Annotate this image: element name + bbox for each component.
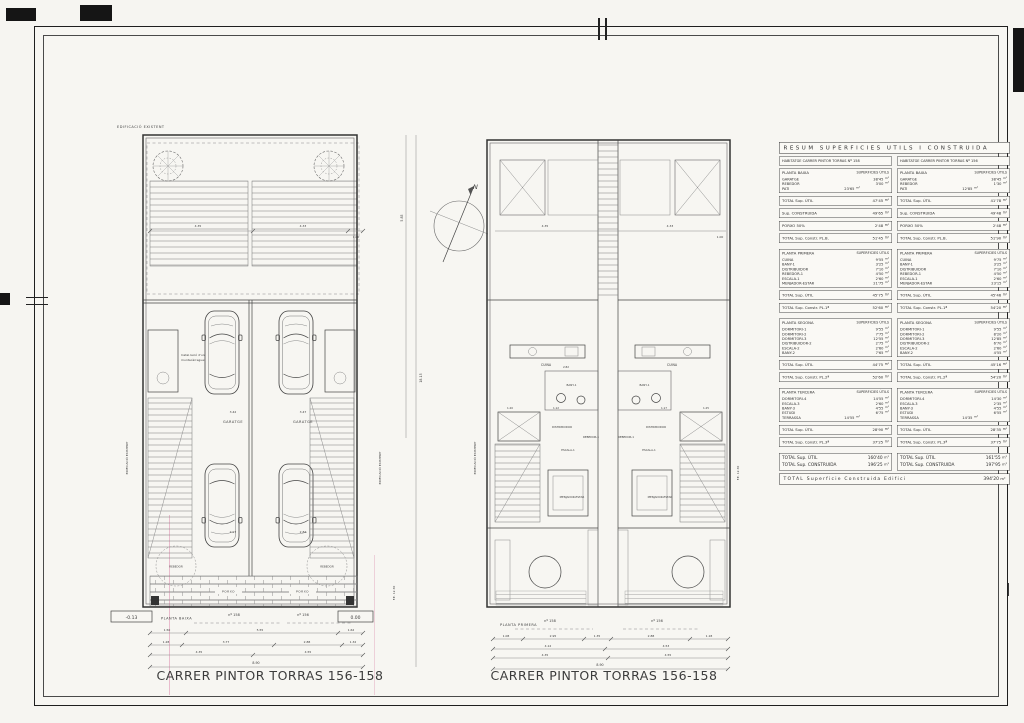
svg-text:8.90: 8.90 xyxy=(596,663,603,667)
table-section: PLANTA BAIXASUPERFICIES ÚTILSGARATGE38'4… xyxy=(779,169,892,194)
svg-text:1.32: 1.32 xyxy=(350,640,357,644)
total-label: TOTAL Sup. Constr. PL.1ª xyxy=(900,306,947,311)
table-row: BANY-27'65m² xyxy=(782,351,889,356)
section-title: PLANTA PRIMERA xyxy=(900,251,932,256)
section-head: PLANTA TERCERASUPERFICIES ÚTILS xyxy=(900,390,1007,395)
edificacio-existent-label: EDIFICACIÓ EXISTENT xyxy=(117,124,165,129)
cell-value: 28'35m² xyxy=(991,428,1007,433)
value-unit: m² xyxy=(1003,411,1007,416)
value-number: 54'20 xyxy=(991,306,1002,311)
value-number: 6'75 xyxy=(876,411,884,416)
dim-label: 1.00 xyxy=(717,235,724,239)
table-total-row: PORXO 50%2'48m² xyxy=(779,221,892,231)
value-number: 37'25 xyxy=(873,440,884,445)
section-title: PLANTA BAIXA xyxy=(782,171,809,176)
room-label-bany: BANY-1 xyxy=(567,383,577,387)
cell-value: 45'16m² xyxy=(991,363,1007,368)
value-number: 47'45 xyxy=(873,199,884,204)
value-number: 196'25 xyxy=(868,462,883,469)
value-unit: m² xyxy=(884,462,889,469)
total-label: PORXO 50% xyxy=(900,224,923,229)
value-number: 28'35 xyxy=(991,428,1002,433)
cell-value: 196'25m² xyxy=(868,462,889,469)
plan-title: PLANTA PRIMERA xyxy=(500,623,537,627)
section-subtitle: SUPERFICIES ÚTILS xyxy=(856,321,889,326)
cell-value: 23'15m² xyxy=(991,281,1007,286)
table-section: PLANTA PRIMERASUPERFICIES ÚTILSCUINA9'55… xyxy=(779,249,892,288)
registration-tick xyxy=(598,18,600,40)
total-label: TOTAL Sup. ÚTIL xyxy=(900,363,931,368)
total-label: TOTAL Sup. ÚTIL xyxy=(782,363,813,368)
row-name: MENJADOR-ESTAR xyxy=(900,281,932,286)
total-label: TOTAL Sup. Constr. PL.B. xyxy=(782,236,829,241)
value-number: 45'16 xyxy=(991,363,1002,368)
value-unit: m² xyxy=(1003,211,1007,216)
grand-label: TOTAL Sup. CONSTRUIDA xyxy=(782,462,836,469)
value-unit: m² xyxy=(885,211,889,216)
value-unit: m² xyxy=(1003,293,1007,298)
value-unit: m² xyxy=(885,411,889,416)
summary-table-columns: HABITATGE CARRER PINTOR TORRAS Nº 158PLA… xyxy=(779,157,1010,474)
row-name: TERRASSA xyxy=(900,415,919,420)
cell-value: 47'45m² xyxy=(873,199,889,204)
grand-row: TOTAL Sup. ÚTIL161'55m² xyxy=(900,455,1007,462)
cell-value: 7'65m² xyxy=(876,351,889,356)
value-number: 49'48 xyxy=(991,211,1002,216)
value-unit: m² xyxy=(1003,224,1007,229)
cell-value: 161'55m² xyxy=(986,455,1007,462)
slab-line xyxy=(143,300,357,303)
svg-text:3.77: 3.77 xyxy=(223,640,230,644)
value-unit: m² xyxy=(1003,363,1007,368)
lift-note: Instal·lació d'un xyxy=(181,353,205,357)
room-label-rebedor: REBEDOR xyxy=(169,565,183,569)
value-number: 3'00 xyxy=(876,182,884,187)
tree-icon xyxy=(314,151,344,181)
existing-stair-hatch xyxy=(150,181,248,266)
total-label: TOTAL Sup. Constr. PL.3ª xyxy=(782,440,829,445)
summary-column: HABITATGE CARRER PINTOR TORRAS Nº 156PLA… xyxy=(897,157,1010,474)
section-head: PLANTA PRIMERASUPERFICIES ÚTILS xyxy=(900,251,1007,256)
value-unit: m² xyxy=(856,186,860,191)
edificacio-existent-label: EDIFICACIÓ EXISTENT xyxy=(472,442,477,475)
elevation-value: 0.00 xyxy=(350,615,360,621)
table-header: HABITATGE CARRER PINTOR TORRAS Nº 156 xyxy=(897,157,1010,166)
plan-title: PLANTA BAIXA xyxy=(161,617,192,621)
svg-text:1.62: 1.62 xyxy=(348,628,355,632)
cell-value: 45'46m² xyxy=(991,293,1007,298)
table-total-row: TOTAL Sup. Constr. PL.1ª54'20m² xyxy=(897,303,1010,313)
cell-value: 14'35m² xyxy=(962,415,978,420)
stair-hatch xyxy=(495,444,725,522)
kitchen-counter xyxy=(510,345,710,358)
total-label: TOTAL Sup. ÚTIL xyxy=(782,428,813,433)
svg-text:8.90: 8.90 xyxy=(252,661,259,665)
value-number: 54'20 xyxy=(991,375,1002,380)
table-total-row: TOTAL Sup. ÚTIL28'90m² xyxy=(779,425,892,435)
row-name: MENJADOR-ESTAR xyxy=(782,281,814,286)
value-unit: m² xyxy=(1003,281,1007,286)
svg-text:4.35: 4.35 xyxy=(196,650,203,654)
dim-label: 1.00 xyxy=(353,235,360,239)
value-number: 4'55 xyxy=(994,351,1002,356)
table-total-row: Sup. CONSTRUIDA49'65m² xyxy=(779,209,892,219)
value-number: 52'60 xyxy=(873,375,884,380)
svg-text:1.28: 1.28 xyxy=(163,640,170,644)
table-total-row: TOTAL Sup. Constr. PL.B.51'90m² xyxy=(897,234,1010,244)
value-unit: m² xyxy=(885,306,889,311)
scan-mark xyxy=(6,8,36,21)
dim-line xyxy=(406,135,416,667)
room-label-rebedor: REBEDOR-1 xyxy=(618,435,634,439)
room-label-distribuidor: DISTRIBUIDOR xyxy=(646,425,666,429)
dim-label: 3.47 xyxy=(300,410,307,414)
dim-label: 1.25 xyxy=(703,406,709,410)
edificacio-existent-label: EDIFICACIÓ EXISTENT xyxy=(124,442,129,475)
value-number: 2'48 xyxy=(993,224,1001,229)
dim-label: 2.84 xyxy=(300,530,307,534)
table-total-row: TOTAL Sup. Constr. PL.2ª54'20m² xyxy=(897,373,1010,383)
central-stair-core xyxy=(598,140,618,607)
scan-mark xyxy=(1013,28,1024,92)
section-subtitle: SUPERFICIES ÚTILS xyxy=(974,171,1007,176)
value-number: 49'65 xyxy=(873,211,884,216)
bathroom xyxy=(545,371,671,410)
table-section: PLANTA PRIMERASUPERFICIES ÚTILSCUINA9'75… xyxy=(897,249,1010,288)
value-unit: m² xyxy=(1003,351,1007,356)
section-title: PLANTA TERCERA xyxy=(900,390,933,395)
summary-column: HABITATGE CARRER PINTOR TORRAS Nº 158PLA… xyxy=(779,157,892,474)
cell-value: 6'75m² xyxy=(876,411,889,416)
car-icon xyxy=(202,311,242,394)
room-label-cuina: CUINA xyxy=(667,363,678,367)
value-unit: m² xyxy=(1002,462,1007,469)
edificacio-existent-label: EDIFICACIÓ EXISTENT xyxy=(377,452,382,485)
svg-text:4.55: 4.55 xyxy=(305,650,312,654)
room-label-porxo: PORXO xyxy=(222,590,235,594)
row-name: BANY-2 xyxy=(782,351,795,356)
svg-text:1.08: 1.08 xyxy=(503,634,510,638)
value-unit: m² xyxy=(885,351,889,356)
section-head: PLANTA TERCERASUPERFICIES ÚTILS xyxy=(782,390,889,395)
value-unit: m² xyxy=(885,375,889,380)
value-unit: m² xyxy=(974,415,978,420)
room-label-menjador: MENJADOR-ESTAR xyxy=(648,495,673,499)
svg-text:4.12: 4.12 xyxy=(545,644,552,648)
table-row: PATI23'65m² xyxy=(782,186,889,191)
value-unit: m² xyxy=(1003,306,1007,311)
table-total-row: TOTAL Sup. ÚTIL45'16m² xyxy=(897,360,1010,370)
room-label-escala: ESCALA-1 xyxy=(561,448,575,452)
lift-note: muntacàrregues xyxy=(181,358,206,362)
value-number: 160'40 xyxy=(868,455,883,462)
value-number: 12'85 xyxy=(962,186,972,191)
table-row: TERRASSA14'35m² xyxy=(900,415,1007,420)
value-number: 45'46 xyxy=(991,293,1002,298)
value-unit: m² xyxy=(856,415,860,420)
room-label-menjador: MENJADOR-ESTAR xyxy=(560,495,585,499)
cell-value: 12'85m² xyxy=(962,186,978,191)
car-icon xyxy=(276,311,316,394)
table-section: PLANTA BAIXASUPERFICIES ÚTILSGARATGE38'4… xyxy=(897,169,1010,194)
value-number: 2'48 xyxy=(875,224,883,229)
cell-value: 44'75m² xyxy=(873,363,889,368)
table-total-row: TOTAL Sup. Constr. PL.3ª37'25m² xyxy=(779,438,892,448)
value-number: 23'15 xyxy=(991,281,1001,286)
value-number: 1'30 xyxy=(994,182,1002,187)
dim-label: 1.20 xyxy=(507,406,513,410)
section-subtitle: SUPERFICIES ÚTILS xyxy=(974,251,1007,256)
room-label-cuina: CUINA xyxy=(541,363,552,367)
section-subtitle: SUPERFICIES ÚTILS xyxy=(974,390,1007,395)
value-number: 44'75 xyxy=(873,363,884,368)
section-subtitle: SUPERFICIES ÚTILS xyxy=(856,251,889,256)
svg-text:2.88: 2.88 xyxy=(304,640,311,644)
summary-table-footer: TOTAL Superficie Construida Edifici 394'… xyxy=(779,473,1010,484)
value-unit: m² xyxy=(884,455,889,462)
grand-row: TOTAL Sup. CONSTRUIDA196'25m² xyxy=(782,462,889,469)
table-total-row: TOTAL Sup. ÚTIL44'75m² xyxy=(779,360,892,370)
dim-label: 1.12 xyxy=(553,406,559,410)
section-title: PLANTA SEGONA xyxy=(900,321,932,326)
dim-label: 18.15 xyxy=(419,373,423,382)
value-unit: m² xyxy=(885,363,889,368)
row-name: BANY-2 xyxy=(900,351,913,356)
section-head: PLANTA PRIMERASUPERFICIES ÚTILS xyxy=(782,251,889,256)
value-number: 51'90 xyxy=(991,236,1002,241)
terrace-furniture xyxy=(495,530,725,605)
total-label: TOTAL Sup. Constr. PL.B. xyxy=(900,236,947,241)
value-number: 14'55 xyxy=(844,415,854,420)
car-lift-shaft xyxy=(148,330,355,392)
dimension-strip: 1.50 5.55 1.62 1.28 3.77 2.88 1.32 4.35 … xyxy=(148,628,365,669)
value-number: 41'78 xyxy=(991,199,1002,204)
table-header: HABITATGE CARRER PINTOR TORRAS Nº 158 xyxy=(779,157,892,166)
dim-label: 2.97 xyxy=(230,530,237,534)
value-unit: m² xyxy=(1003,199,1007,204)
cell-value: 21'75m² xyxy=(873,281,889,286)
table-row: BANY-24'55m² xyxy=(900,351,1007,356)
svg-text:4.53: 4.53 xyxy=(663,644,670,648)
floor-plan-planta-primera: 4.35 4.33 1.00 CUINA CUINA BANY-1 BANY-1… xyxy=(450,88,770,698)
cell-value: 37'75m² xyxy=(991,440,1007,445)
total-label: Sup. CONSTRUIDA xyxy=(900,211,935,216)
table-row: TERRASSA14'55m² xyxy=(782,415,889,420)
party-wall xyxy=(249,300,252,576)
total-label: TOTAL Sup. Constr. PL.2ª xyxy=(782,375,829,380)
cell-value: 14'55m² xyxy=(844,415,860,420)
table-row: MENJADOR-ESTAR23'15m² xyxy=(900,281,1007,286)
fe-label: F.E. 12.30 xyxy=(392,586,396,601)
value-unit: m² xyxy=(1003,428,1007,433)
table-total-row: TOTAL Sup. Constr. PL.1ª52'60m² xyxy=(779,303,892,313)
cell-value: 1'30m² xyxy=(994,182,1007,187)
dim-label: 3.42 xyxy=(230,410,237,414)
value-number: 23'65 xyxy=(844,186,854,191)
cell-value: 49'48m² xyxy=(991,211,1007,216)
svg-text:2.95: 2.95 xyxy=(550,634,557,638)
street-caption-left: CARRER PINTOR TORRAS 156-158 xyxy=(138,668,402,683)
value-number: 197'95 xyxy=(986,462,1001,469)
value-unit: m² xyxy=(1003,182,1007,187)
section-title: PLANTA TERCERA xyxy=(782,390,815,395)
cell-value: 41'78m² xyxy=(991,199,1007,204)
cell-value: 51'90m² xyxy=(991,236,1007,241)
cell-value: 23'65m² xyxy=(844,186,860,191)
summary-table-title: RESUM SUPERFICIES UTILS I CONSTRUIDA xyxy=(779,142,1010,154)
value-number: 28'90 xyxy=(873,428,884,433)
table-total-row: TOTAL Sup. ÚTIL47'45m² xyxy=(779,196,892,206)
table-total-row: PORXO 50%2'48m² xyxy=(897,221,1010,231)
total-label: Sup. CONSTRUIDA xyxy=(782,211,817,216)
cell-value: 52'60m² xyxy=(873,375,889,380)
section-title: PLANTA SEGONA xyxy=(782,321,814,326)
street-caption-right: CARRER PINTOR TORRAS 156-158 xyxy=(468,668,740,683)
value-number: 21'75 xyxy=(873,281,883,286)
value-number: 37'75 xyxy=(991,440,1002,445)
section-subtitle: SUPERFICIES ÚTILS xyxy=(856,390,889,395)
cell-value: 3'00m² xyxy=(876,182,889,187)
table-total-row: TOTAL Sup. Constr. PL.2ª52'60m² xyxy=(779,373,892,383)
section-subtitle: SUPERFICIES ÚTILS xyxy=(974,321,1007,326)
stair-hatch xyxy=(148,398,354,558)
total-label: PORXO 50% xyxy=(782,224,805,229)
summary-table: RESUM SUPERFICIES UTILS I CONSTRUIDA HAB… xyxy=(779,142,1010,484)
total-label: TOTAL Sup. Constr. PL.1ª xyxy=(782,306,829,311)
cell-value: 4'55m² xyxy=(994,351,1007,356)
cell-value: 45'75m² xyxy=(873,293,889,298)
row-name: PATI xyxy=(782,186,789,191)
room-label-garatge: GARATGE xyxy=(223,420,243,424)
table-section: PLANTA SEGONASUPERFICIES ÚTILSDORMITORI-… xyxy=(897,319,1010,358)
room-label-porxo: PORXO xyxy=(296,590,309,594)
total-label: TOTAL Sup. ÚTIL xyxy=(782,293,813,298)
grand-row: TOTAL Sup. CONSTRUIDA197'95m² xyxy=(900,462,1007,469)
value-unit: m² xyxy=(885,281,889,286)
footer-number: 394'20 xyxy=(983,476,999,481)
unit-number: nº 158 xyxy=(544,619,556,623)
cell-value: 2'48m² xyxy=(993,224,1007,229)
total-label: TOTAL Sup. ÚTIL xyxy=(900,199,931,204)
scan-mark xyxy=(80,5,112,21)
table-total-row: Sup. CONSTRUIDA49'48m² xyxy=(897,209,1010,219)
row-name: PATI xyxy=(900,186,907,191)
car-icon xyxy=(202,464,242,547)
total-label: TOTAL Sup. ÚTIL xyxy=(900,293,931,298)
room-label-garatge: GARATGE xyxy=(293,420,313,424)
grand-label: TOTAL Sup. ÚTIL xyxy=(900,455,935,462)
row-name: TERRASSA xyxy=(782,415,801,420)
upper-room xyxy=(548,160,598,215)
svg-text:1.35: 1.35 xyxy=(594,634,601,638)
upper-room xyxy=(620,160,670,215)
total-label: TOTAL Sup. Constr. PL.3ª xyxy=(900,440,947,445)
porch-paving xyxy=(150,576,357,606)
dim-label: 2.82 xyxy=(563,365,569,369)
svg-text:4.35: 4.35 xyxy=(542,653,549,657)
fe-label: F.E. 12.30 xyxy=(736,466,740,481)
grand-label: TOTAL Sup. CONSTRUIDA xyxy=(900,462,954,469)
section-title: PLANTA PRIMERA xyxy=(782,251,814,256)
unit-number: nº 158 xyxy=(228,613,240,617)
total-label: TOTAL Sup. Constr. PL.2ª xyxy=(900,375,947,380)
room-label-distribuidor: DISTRIBUIDOR xyxy=(552,425,572,429)
cell-value: 6'55m² xyxy=(994,411,1007,416)
table-section: PLANTA TERCERASUPERFICIES ÚTILSDORMITORI… xyxy=(779,388,892,422)
registration-tick xyxy=(605,18,607,40)
unit-number: nº 156 xyxy=(651,619,663,623)
total-label: TOTAL Sup. ÚTIL xyxy=(782,199,813,204)
value-number: 52'60 xyxy=(873,306,884,311)
dim-label: 4.33 xyxy=(667,224,674,228)
value-unit: m² xyxy=(885,236,889,241)
value-unit: m² xyxy=(1003,375,1007,380)
room-label-rebedor: REBEDOR-1 xyxy=(583,435,599,439)
existing-stair-hatch xyxy=(252,181,357,266)
section-title: PLANTA BAIXA xyxy=(900,171,927,176)
cell-value: 197'95m² xyxy=(986,462,1007,469)
grand-row: TOTAL Sup. ÚTIL160'40m² xyxy=(782,455,889,462)
value-number: 14'35 xyxy=(962,415,972,420)
table-total-row: TOTAL Sup. Constr. PL.B.51'45m² xyxy=(779,234,892,244)
value-unit: m² xyxy=(885,224,889,229)
value-unit: m² xyxy=(1003,236,1007,241)
table-total-row: TOTAL Sup. ÚTIL45'46m² xyxy=(897,291,1010,301)
footer-unit: m² xyxy=(1000,476,1005,481)
table-section: PLANTA TERCERASUPERFICIES ÚTILSDORMITORI… xyxy=(897,388,1010,422)
value-number: 6'55 xyxy=(994,411,1002,416)
scan-mark xyxy=(0,293,10,305)
cell-value: 54'20m² xyxy=(991,375,1007,380)
dim-label: 1.17 xyxy=(661,406,667,410)
cell-value: 28'90m² xyxy=(873,428,889,433)
section-head: PLANTA SEGONASUPERFICIES ÚTILS xyxy=(782,321,889,326)
table-total-row: TOTAL Sup. Constr. PL.3ª37'75m² xyxy=(897,438,1010,448)
room-label-rebedor: REBEDOR xyxy=(320,565,334,569)
table-grand-totals: TOTAL Sup. ÚTIL161'55m²TOTAL Sup. CONSTR… xyxy=(897,453,1010,470)
table-row: MENJADOR-ESTAR21'75m² xyxy=(782,281,889,286)
svg-text:1.50: 1.50 xyxy=(164,628,171,632)
table-row: PATI12'85m² xyxy=(900,186,1007,191)
dim-label: 5.85 xyxy=(400,214,404,221)
cell-value: 37'25m² xyxy=(873,440,889,445)
value-unit: m² xyxy=(1003,440,1007,445)
registration-tick xyxy=(26,304,48,305)
value-unit: m² xyxy=(885,293,889,298)
lift-box xyxy=(498,412,722,441)
room-label-escala: ESCALA-1 xyxy=(642,448,656,452)
footer-label: TOTAL Superficie Construida Edifici xyxy=(784,476,907,481)
threshold xyxy=(151,596,159,605)
value-unit: m² xyxy=(885,182,889,187)
value-number: 161'55 xyxy=(986,455,1001,462)
svg-text:4.55: 4.55 xyxy=(665,653,672,657)
table-total-row: TOTAL Sup. ÚTIL28'35m² xyxy=(897,425,1010,435)
value-unit: m² xyxy=(974,186,978,191)
dim-label: 4.33 xyxy=(300,224,307,228)
value-unit: m² xyxy=(885,199,889,204)
cell-value: 54'20m² xyxy=(991,306,1007,311)
table-section: PLANTA SEGONASUPERFICIES ÚTILSDORMITORI-… xyxy=(779,319,892,358)
value-number: 51'45 xyxy=(873,236,884,241)
table-total-row: TOTAL Sup. ÚTIL45'75m² xyxy=(779,291,892,301)
room-label-bany: BANY-1 xyxy=(640,383,650,387)
cell-value: 49'65m² xyxy=(873,211,889,216)
dining-table xyxy=(548,470,672,516)
floor-plan-planta-baixa: Instal·lació d'un muntacàrregues Instal·… xyxy=(88,88,428,698)
section-head: PLANTA BAIXASUPERFICIES ÚTILS xyxy=(900,171,1007,176)
registration-tick xyxy=(26,297,48,298)
